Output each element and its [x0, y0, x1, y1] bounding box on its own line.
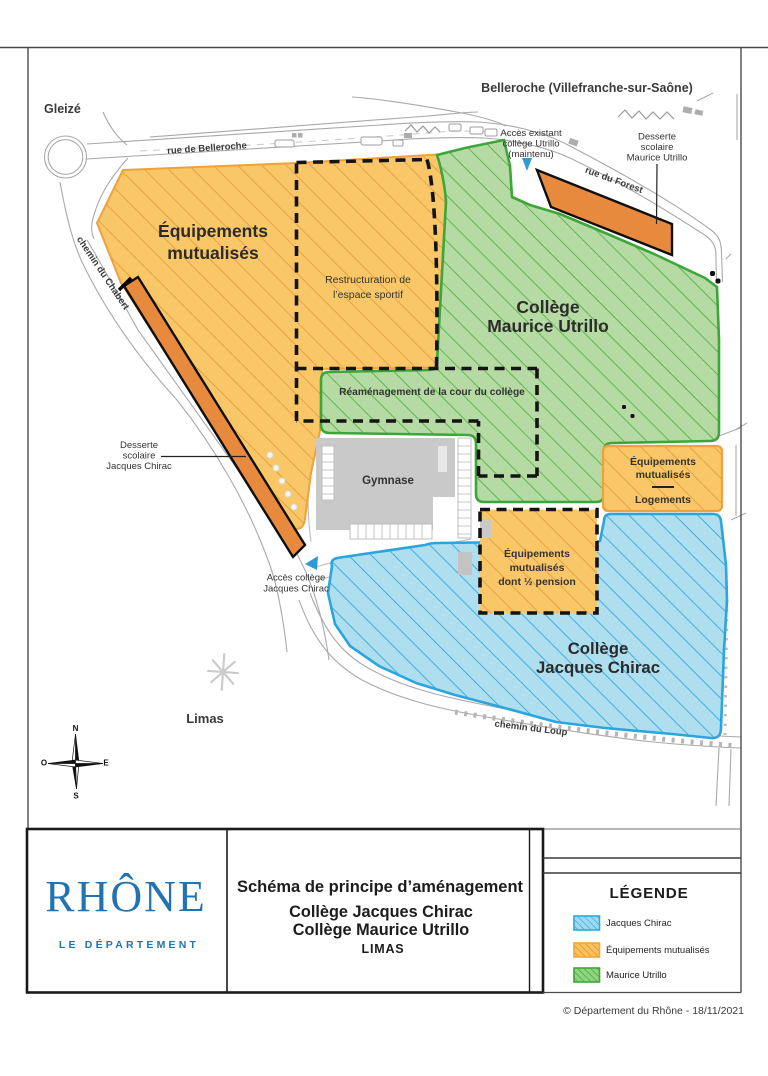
svg-text:Schéma de principe d’aménageme: Schéma de principe d’aménagement [237, 878, 524, 896]
svg-text:O: O [41, 759, 47, 768]
svg-text:Équipements: Équipements [504, 547, 570, 560]
svg-text:Collège Jacques Chirac: Collège Jacques Chirac [289, 903, 473, 921]
svg-text:(maintenu): (maintenu) [508, 149, 553, 160]
svg-text:Jacques Chirac: Jacques Chirac [263, 584, 329, 595]
svg-text:scolaire: scolaire [641, 142, 674, 153]
svg-text:Collège Maurice Utrillo: Collège Maurice Utrillo [293, 921, 469, 939]
svg-text:mutualisés: mutualisés [636, 469, 691, 481]
svg-text:© Département du Rhône - 18/11: © Département du Rhône - 18/11/2021 [563, 1005, 744, 1017]
svg-text:LIMAS: LIMAS [362, 942, 405, 956]
svg-text:Jacques Chirac: Jacques Chirac [536, 658, 660, 677]
svg-text:Maurice Utrillo: Maurice Utrillo [487, 316, 609, 336]
svg-text:Maurice Utrillo: Maurice Utrillo [606, 970, 667, 981]
svg-text:l’espace sportif: l’espace sportif [333, 289, 403, 301]
svg-text:Gleizé: Gleizé [44, 102, 81, 116]
svg-text:Restructuration de: Restructuration de [325, 274, 411, 286]
svg-text:Équipements: Équipements [630, 455, 696, 468]
svg-text:Belleroche (Villefranche-sur-S: Belleroche (Villefranche-sur-Saône) [481, 81, 693, 95]
svg-text:Accès existant: Accès existant [500, 128, 562, 139]
svg-text:Jacques Chirac: Jacques Chirac [106, 461, 172, 472]
svg-text:Desserte: Desserte [638, 132, 676, 143]
svg-text:Réaménagement de la cour du co: Réaménagement de la cour du collège [339, 387, 525, 398]
svg-text:E: E [103, 759, 109, 768]
svg-text:Collège: Collège [568, 639, 629, 658]
svg-text:RHÔNE: RHÔNE [45, 872, 207, 921]
svg-text:LE DÉPARTEMENT: LE DÉPARTEMENT [59, 938, 199, 951]
svg-text:LÉGENDE: LÉGENDE [609, 885, 688, 902]
svg-text:collège Utrillo: collège Utrillo [502, 139, 559, 150]
svg-text:Limas: Limas [186, 711, 224, 726]
svg-text:Desserte: Desserte [120, 440, 158, 451]
svg-text:scolaire: scolaire [123, 451, 156, 462]
svg-text:Jacques Chirac: Jacques Chirac [606, 918, 672, 929]
svg-text:mutualisés: mutualisés [510, 562, 565, 574]
svg-text:dont ½ pension: dont ½ pension [498, 576, 576, 588]
svg-text:N: N [73, 724, 79, 733]
svg-text:S: S [73, 792, 79, 801]
svg-text:Accès collège: Accès collège [267, 573, 326, 584]
svg-text:Logements: Logements [635, 494, 691, 506]
svg-text:Équipements mutualisés: Équipements mutualisés [606, 945, 710, 956]
svg-text:Maurice Utrillo: Maurice Utrillo [627, 153, 688, 164]
svg-text:Gymnase: Gymnase [362, 475, 414, 487]
svg-text:mutualisés: mutualisés [167, 243, 259, 263]
svg-text:Collège: Collège [516, 297, 579, 317]
svg-text:Équipements: Équipements [158, 220, 268, 241]
